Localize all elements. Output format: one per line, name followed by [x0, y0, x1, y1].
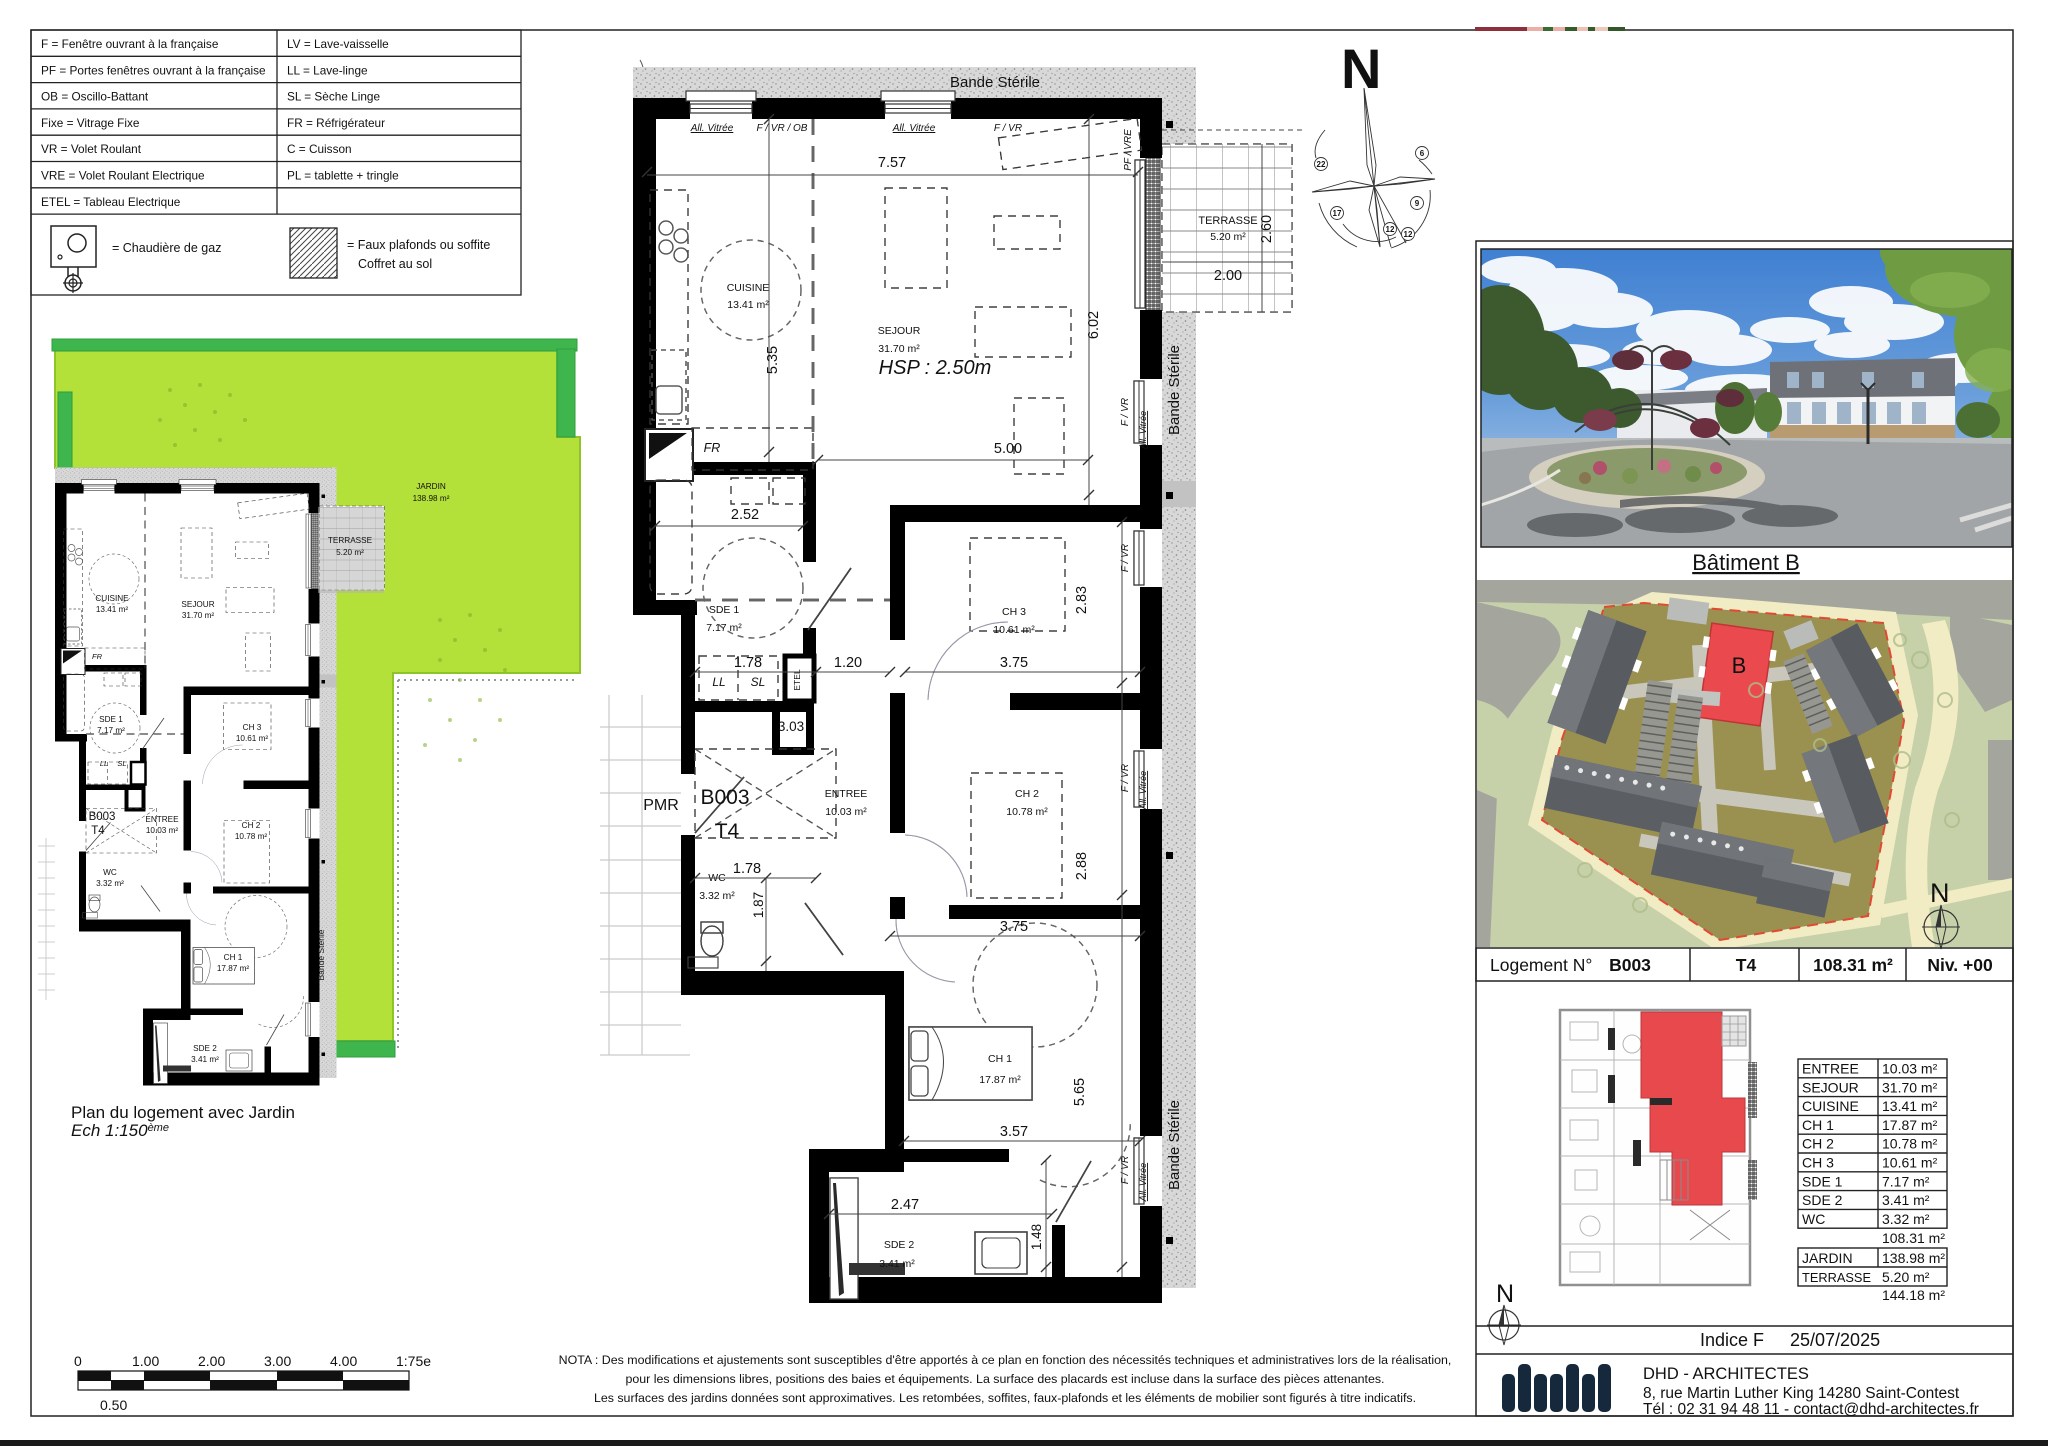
svg-text:Bande Stérile: Bande Stérile	[1166, 1100, 1183, 1190]
svg-text:5.65: 5.65	[1072, 1078, 1088, 1106]
svg-text:All. Vitrée: All. Vitrée	[690, 123, 734, 134]
svg-text:ENTREE: ENTREE	[825, 788, 868, 800]
svg-text:9: 9	[1415, 199, 1420, 208]
svg-text:B003: B003	[1609, 955, 1651, 975]
svg-text:F / VR / OB: F / VR / OB	[757, 123, 808, 134]
svg-text:12: 12	[1404, 230, 1413, 239]
svg-text:SEJOUR: SEJOUR	[878, 325, 921, 337]
svg-text:TERRASSE: TERRASSE	[1802, 1270, 1871, 1285]
svg-text:FR: FR	[704, 441, 721, 455]
svg-text:CUISINE: CUISINE	[95, 594, 129, 603]
svg-text:3.32 m²: 3.32 m²	[96, 879, 124, 888]
svg-text:B003: B003	[700, 786, 749, 809]
svg-text:ETEL = Tableau Electrique: ETEL = Tableau Electrique	[41, 195, 181, 209]
svg-text:108.31 m²: 108.31 m²	[1813, 955, 1893, 975]
svg-text:SL = Sèche Linge: SL = Sèche Linge	[287, 90, 380, 104]
svg-text:144.18 m²: 144.18 m²	[1882, 1287, 1945, 1303]
svg-text:Tél : 02 31 94 48 11 - contact: Tél : 02 31 94 48 11 - contact@dhd-archi…	[1643, 1401, 1979, 1418]
svg-text:F / VR: F / VR	[1120, 398, 1131, 426]
svg-text:JARDIN: JARDIN	[416, 482, 446, 491]
svg-text:10.03 m²: 10.03 m²	[146, 826, 179, 835]
svg-text:T4: T4	[1736, 955, 1757, 975]
svg-text:2.88: 2.88	[1074, 852, 1090, 880]
svg-text:3.41 m²: 3.41 m²	[879, 1258, 915, 1270]
svg-text:LL: LL	[712, 675, 725, 689]
svg-text:F = Fenêtre ouvrant à la franç: F = Fenêtre ouvrant à la française	[41, 37, 219, 51]
svg-text:SDE 1: SDE 1	[99, 715, 123, 724]
svg-text:JARDIN: JARDIN	[1802, 1250, 1853, 1266]
svg-text:TERRASSE: TERRASSE	[1198, 215, 1257, 227]
svg-text:Bande Stérile: Bande Stérile	[950, 74, 1040, 91]
svg-text:13.41 m²: 13.41 m²	[727, 299, 769, 311]
svg-text:7.17 m²: 7.17 m²	[706, 622, 742, 634]
svg-text:SDE 1: SDE 1	[1802, 1173, 1843, 1189]
svg-text:LV = Lave-vaisselle: LV = Lave-vaisselle	[287, 37, 389, 51]
svg-text:1.48: 1.48	[1029, 1224, 1044, 1250]
svg-text:ENTREE: ENTREE	[145, 815, 179, 824]
svg-text:Bande Stérile: Bande Stérile	[316, 929, 326, 980]
svg-text:T4: T4	[715, 820, 740, 843]
svg-text:ENTREE: ENTREE	[1802, 1061, 1859, 1077]
svg-text:5.20 m²: 5.20 m²	[1882, 1269, 1930, 1285]
svg-text:17.87 m²: 17.87 m²	[1882, 1117, 1938, 1133]
svg-text:2.83: 2.83	[1074, 586, 1090, 614]
svg-text:8, rue Martin Luther King 1428: 8, rue Martin Luther King 14280 Saint-Co…	[1643, 1385, 1960, 1402]
svg-text:Bâtiment B: Bâtiment B	[1692, 550, 1800, 575]
svg-text:1.78: 1.78	[734, 655, 762, 671]
svg-text:CH 1: CH 1	[988, 1053, 1012, 1065]
svg-text:Les surfaces des jardins donné: Les surfaces des jardins données sont ap…	[594, 1391, 1416, 1405]
svg-text:Coffret au sol: Coffret au sol	[358, 257, 432, 271]
svg-text:HSP : 2.50m: HSP : 2.50m	[879, 357, 992, 379]
svg-text:1.00: 1.00	[132, 1353, 159, 1369]
svg-text:= Chaudière de gaz: = Chaudière de gaz	[112, 241, 221, 255]
svg-text:6: 6	[1420, 149, 1425, 158]
svg-text:3.41 m²: 3.41 m²	[1882, 1192, 1930, 1208]
svg-text:VRE = Volet Roulant Electrique: VRE = Volet Roulant Electrique	[41, 169, 205, 183]
svg-text:B003: B003	[89, 811, 116, 823]
svg-text:CH 3: CH 3	[1002, 606, 1026, 618]
svg-text:17.87 m²: 17.87 m²	[979, 1074, 1021, 1086]
svg-text:1:75e: 1:75e	[396, 1353, 431, 1369]
svg-text:N: N	[1496, 1280, 1514, 1308]
svg-text:10.78 m²: 10.78 m²	[235, 832, 268, 841]
svg-text:B: B	[1732, 653, 1747, 678]
svg-text:PF / VRE: PF / VRE	[1123, 129, 1134, 171]
svg-text:WC: WC	[1802, 1211, 1825, 1227]
svg-text:7.17 m²: 7.17 m²	[1882, 1173, 1930, 1189]
svg-text:3.00: 3.00	[264, 1353, 291, 1369]
svg-text:PF = Portes fenêtres ouvrant à: PF = Portes fenêtres ouvrant à la frança…	[41, 63, 266, 77]
svg-text:10.61 m²: 10.61 m²	[993, 624, 1035, 636]
svg-text:OB = Oscillo-Battant: OB = Oscillo-Battant	[41, 90, 149, 104]
svg-text:3.32 m²: 3.32 m²	[1882, 1211, 1930, 1227]
svg-text:12: 12	[1386, 225, 1395, 234]
svg-text:3.57: 3.57	[1000, 1124, 1028, 1140]
svg-text:C = Cuisson: C = Cuisson	[287, 142, 352, 156]
svg-text:DHD - ARCHITECTES: DHD - ARCHITECTES	[1643, 1365, 1809, 1383]
svg-text:SDE 2: SDE 2	[193, 1044, 217, 1053]
svg-text:Niv. +00: Niv. +00	[1927, 955, 1993, 975]
svg-text:10.78 m²: 10.78 m²	[1882, 1136, 1938, 1152]
svg-text:Bande Stérile: Bande Stérile	[1166, 345, 1183, 435]
svg-text:= Faux plafonds ou soffite: = Faux plafonds ou soffite	[347, 238, 490, 252]
svg-text:FR: FR	[92, 652, 103, 661]
svg-text:CH 3: CH 3	[243, 723, 262, 732]
svg-text:3.75: 3.75	[1000, 919, 1028, 935]
svg-text:2.00: 2.00	[198, 1353, 225, 1369]
svg-text:LL = Lave-linge: LL = Lave-linge	[287, 63, 368, 77]
svg-text:5.20 m²: 5.20 m²	[1210, 231, 1246, 243]
svg-text:CH 2: CH 2	[1802, 1136, 1834, 1152]
svg-text:17: 17	[1333, 209, 1342, 218]
svg-text:All. Vitrée: All. Vitrée	[1138, 771, 1148, 810]
svg-text:2.00: 2.00	[1214, 268, 1242, 284]
svg-text:7.57: 7.57	[878, 155, 906, 171]
svg-text:CUISINE: CUISINE	[1802, 1098, 1859, 1114]
svg-text:Fixe = Vitrage Fixe: Fixe = Vitrage Fixe	[41, 116, 140, 130]
svg-text:4.00: 4.00	[330, 1353, 357, 1369]
svg-text:2.47: 2.47	[891, 1197, 919, 1213]
svg-text:10.78 m²: 10.78 m²	[1006, 806, 1048, 818]
svg-text:1.78: 1.78	[733, 861, 761, 877]
svg-text:WC: WC	[103, 868, 117, 877]
svg-text:31.70 m²: 31.70 m²	[1882, 1079, 1938, 1095]
svg-text:SDE 2: SDE 2	[1802, 1192, 1843, 1208]
svg-text:138.98 m²: 138.98 m²	[413, 494, 450, 503]
svg-text:SDE 2: SDE 2	[884, 1239, 915, 1251]
svg-text:138.98 m²: 138.98 m²	[1882, 1250, 1945, 1266]
svg-text:SEJOUR: SEJOUR	[181, 600, 214, 609]
svg-text:5.00: 5.00	[994, 441, 1022, 457]
svg-text:6.02: 6.02	[1086, 311, 1102, 339]
svg-text:CH 3: CH 3	[1802, 1155, 1834, 1171]
svg-text:10.03 m²: 10.03 m²	[1882, 1061, 1938, 1077]
svg-text:CH 1: CH 1	[1802, 1117, 1834, 1133]
svg-text:SEJOUR: SEJOUR	[1802, 1079, 1859, 1095]
svg-text:1.87: 1.87	[751, 892, 766, 918]
svg-text:1.20: 1.20	[834, 655, 862, 671]
svg-text:TERRASSE: TERRASSE	[328, 536, 373, 545]
svg-text:0: 0	[74, 1353, 82, 1369]
svg-text:Logement N°: Logement N°	[1490, 955, 1592, 975]
svg-text:VR = Volet Roulant: VR = Volet Roulant	[41, 142, 142, 156]
svg-text:FR = Réfrigérateur: FR = Réfrigérateur	[287, 116, 385, 130]
svg-text:3.41 m²: 3.41 m²	[191, 1055, 219, 1064]
svg-text:10.61 m²: 10.61 m²	[1882, 1155, 1938, 1171]
svg-text:25/07/2025: 25/07/2025	[1790, 1330, 1880, 1350]
svg-text:T4: T4	[91, 825, 105, 837]
svg-text:LL: LL	[100, 759, 108, 768]
svg-text:2.60: 2.60	[1259, 215, 1275, 243]
svg-text:SL: SL	[117, 759, 126, 768]
svg-text:5.35: 5.35	[765, 346, 781, 374]
svg-text:2.52: 2.52	[731, 507, 759, 523]
svg-text:SDE 1: SDE 1	[709, 604, 740, 616]
svg-text:pour les dimensions libres, po: pour les dimensions libres, positions de…	[625, 1372, 1384, 1386]
svg-text:PL = tablette + tringle: PL = tablette + tringle	[287, 169, 399, 183]
svg-text:31.70 m²: 31.70 m²	[182, 611, 215, 620]
svg-text:CH 2: CH 2	[242, 821, 261, 830]
svg-text:CUISINE: CUISINE	[727, 282, 770, 294]
svg-text:All. Vitrée: All. Vitrée	[1138, 1163, 1148, 1202]
svg-text:Indice F: Indice F	[1700, 1330, 1764, 1350]
svg-text:CH 1: CH 1	[224, 953, 243, 962]
svg-text:5.20 m²: 5.20 m²	[336, 548, 364, 557]
svg-text:All. Vitrée: All. Vitrée	[1138, 411, 1148, 450]
svg-text:Plan du logement avec Jardin: Plan du logement avec Jardin	[71, 1103, 295, 1122]
svg-text:3.32 m²: 3.32 m²	[699, 890, 735, 902]
svg-text:PMR: PMR	[643, 797, 679, 814]
svg-text:3.03: 3.03	[778, 719, 804, 734]
svg-text:31.70 m²: 31.70 m²	[878, 343, 920, 355]
svg-text:7.17 m²: 7.17 m²	[97, 726, 125, 735]
svg-text:3.75: 3.75	[1000, 655, 1028, 671]
svg-text:F / VR: F / VR	[994, 123, 1022, 134]
svg-text:13.41 m²: 13.41 m²	[1882, 1098, 1938, 1114]
svg-text:NOTA : Des modifications et aj: NOTA : Des modifications et ajustements …	[559, 1353, 1452, 1367]
svg-text:22: 22	[1317, 160, 1326, 169]
svg-text:N: N	[1341, 37, 1381, 100]
svg-text:108.31 m²: 108.31 m²	[1882, 1230, 1945, 1246]
svg-text:17.87 m²: 17.87 m²	[217, 964, 250, 973]
svg-text:All. Vitrée: All. Vitrée	[892, 123, 936, 134]
svg-text:10.03 m²: 10.03 m²	[825, 806, 867, 818]
svg-text:10.61 m²: 10.61 m²	[236, 734, 269, 743]
svg-text:CH 2: CH 2	[1015, 788, 1039, 800]
svg-text:13.41 m²: 13.41 m²	[96, 605, 129, 614]
svg-text:0.50: 0.50	[100, 1397, 127, 1413]
svg-text:SL: SL	[751, 675, 766, 689]
svg-text:Ech 1:150ème: Ech 1:150ème	[71, 1121, 169, 1140]
svg-text:N: N	[1930, 878, 1950, 908]
